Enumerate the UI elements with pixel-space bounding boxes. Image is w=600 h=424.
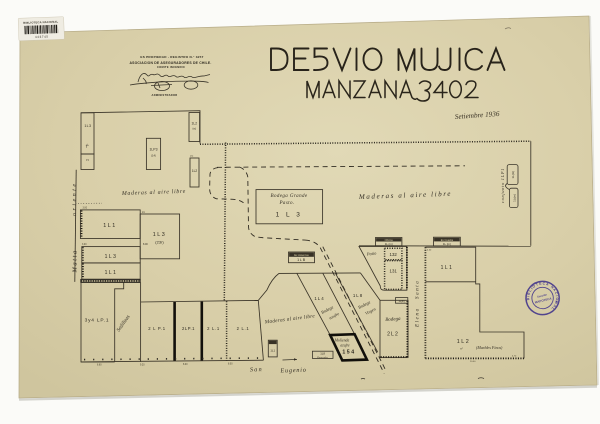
svg-text:oriente: oriente [72,181,78,216]
svg-text:1LP3: 1LP3 [150,148,158,152]
svg-text:2 L P.1: 2 L P.1 [148,326,165,331]
svg-text:Bodega Grande: Bodega Grande [271,194,308,199]
svg-text:azufre: azufre [340,344,350,348]
svg-text:(m): (m) [190,156,194,158]
svg-text:131: 131 [390,269,398,274]
svg-text:3.00: 3.00 [83,208,88,210]
svg-text:1L3: 1L3 [84,124,91,128]
svg-text:1L2: 1L2 [192,169,198,173]
svg-text:1L1: 1L1 [441,265,454,271]
svg-text:1L8: 1L8 [353,293,363,298]
svg-text:6.60: 6.60 [97,365,102,367]
svg-text:2L2: 2L2 [387,332,399,338]
svg-text:Pasto.: Pasto. [278,201,294,206]
svg-text:(23r): (23r) [155,240,164,245]
svg-text:1L2: 1L2 [192,122,198,126]
svg-text:ASOCIACION DE ASEGURADORES DE: ASOCIACION DE ASEGURADORES DE CHILE. [129,61,211,65]
svg-text:1L4: 1L4 [314,296,324,301]
svg-text:1L(m): 1L(m) [398,300,404,303]
svg-text:132: 132 [390,252,398,257]
svg-text:154: 154 [342,350,355,356]
svg-text:24.: 24. [142,212,146,214]
svg-text:443745: 443745 [35,35,49,39]
svg-text:1LB: 1LB [297,258,306,262]
svg-text:1L1: 1L1 [270,349,275,353]
svg-text:Ex Asientos: Ex Asientos [294,253,309,257]
svg-text:2 L.1: 2 L.1 [237,326,250,331]
svg-text:COMITE INCENDIO: COMITE INCENDIO [157,65,185,69]
svg-text:Desecador: Desecador [316,356,328,359]
svg-text:20.60: 20.60 [470,361,476,363]
svg-text:ADMINISTRADOR: ADMINISTRADOR [152,93,178,97]
svg-text:San: San [250,366,263,373]
svg-text:1L (m): 1L (m) [385,242,393,246]
svg-text:(m): (m) [193,128,197,131]
svg-text:1L1: 1L1 [103,223,117,229]
svg-text:2 L.1: 2 L.1 [207,326,220,331]
svg-text:3y4 LP.1: 3y4 LP.1 [85,318,110,324]
svg-text:8.00: 8.00 [143,243,148,246]
svg-text:1L(m): 1L(m) [511,171,515,179]
svg-text:8.00: 8.00 [228,364,233,366]
svg-text:Eugenio: Eugenio [279,367,306,375]
svg-text:Santa: Santa [416,280,421,299]
svg-text:(14): (14) [151,154,156,158]
svg-text:1L2: 1L2 [457,339,471,345]
svg-text:(Muebles Finos): (Muebles Finos) [476,345,503,350]
svg-text:1L3: 1L3 [153,232,167,238]
svg-text:Matta: Matta [72,249,79,273]
svg-text:ES PROPIEDAD - REGISTRO N.° 32: ES PROPIEDAD - REGISTRO N.° 3257 [140,55,203,59]
svg-text:9.20: 9.20 [140,364,145,366]
svg-text:2LP.1: 2LP.1 [182,326,195,331]
svg-text:1L (m): 1L (m) [443,242,451,246]
svg-text:1 L 3: 1 L 3 [276,212,303,219]
svg-text:Elena: Elena [416,307,421,328]
svg-text:(m): (m) [86,160,90,162]
svg-text:8.00: 8.00 [183,364,188,366]
svg-text:1L1: 1L1 [105,270,118,276]
svg-text:3.00: 3.00 [82,244,87,246]
svg-text:Molienda: Molienda [334,339,350,343]
svg-text:1L(m): 1L(m) [512,194,516,202]
svg-text:conjunto 1LP1: conjunto 1LP1 [500,168,505,203]
svg-text:1L3: 1L3 [105,254,118,260]
